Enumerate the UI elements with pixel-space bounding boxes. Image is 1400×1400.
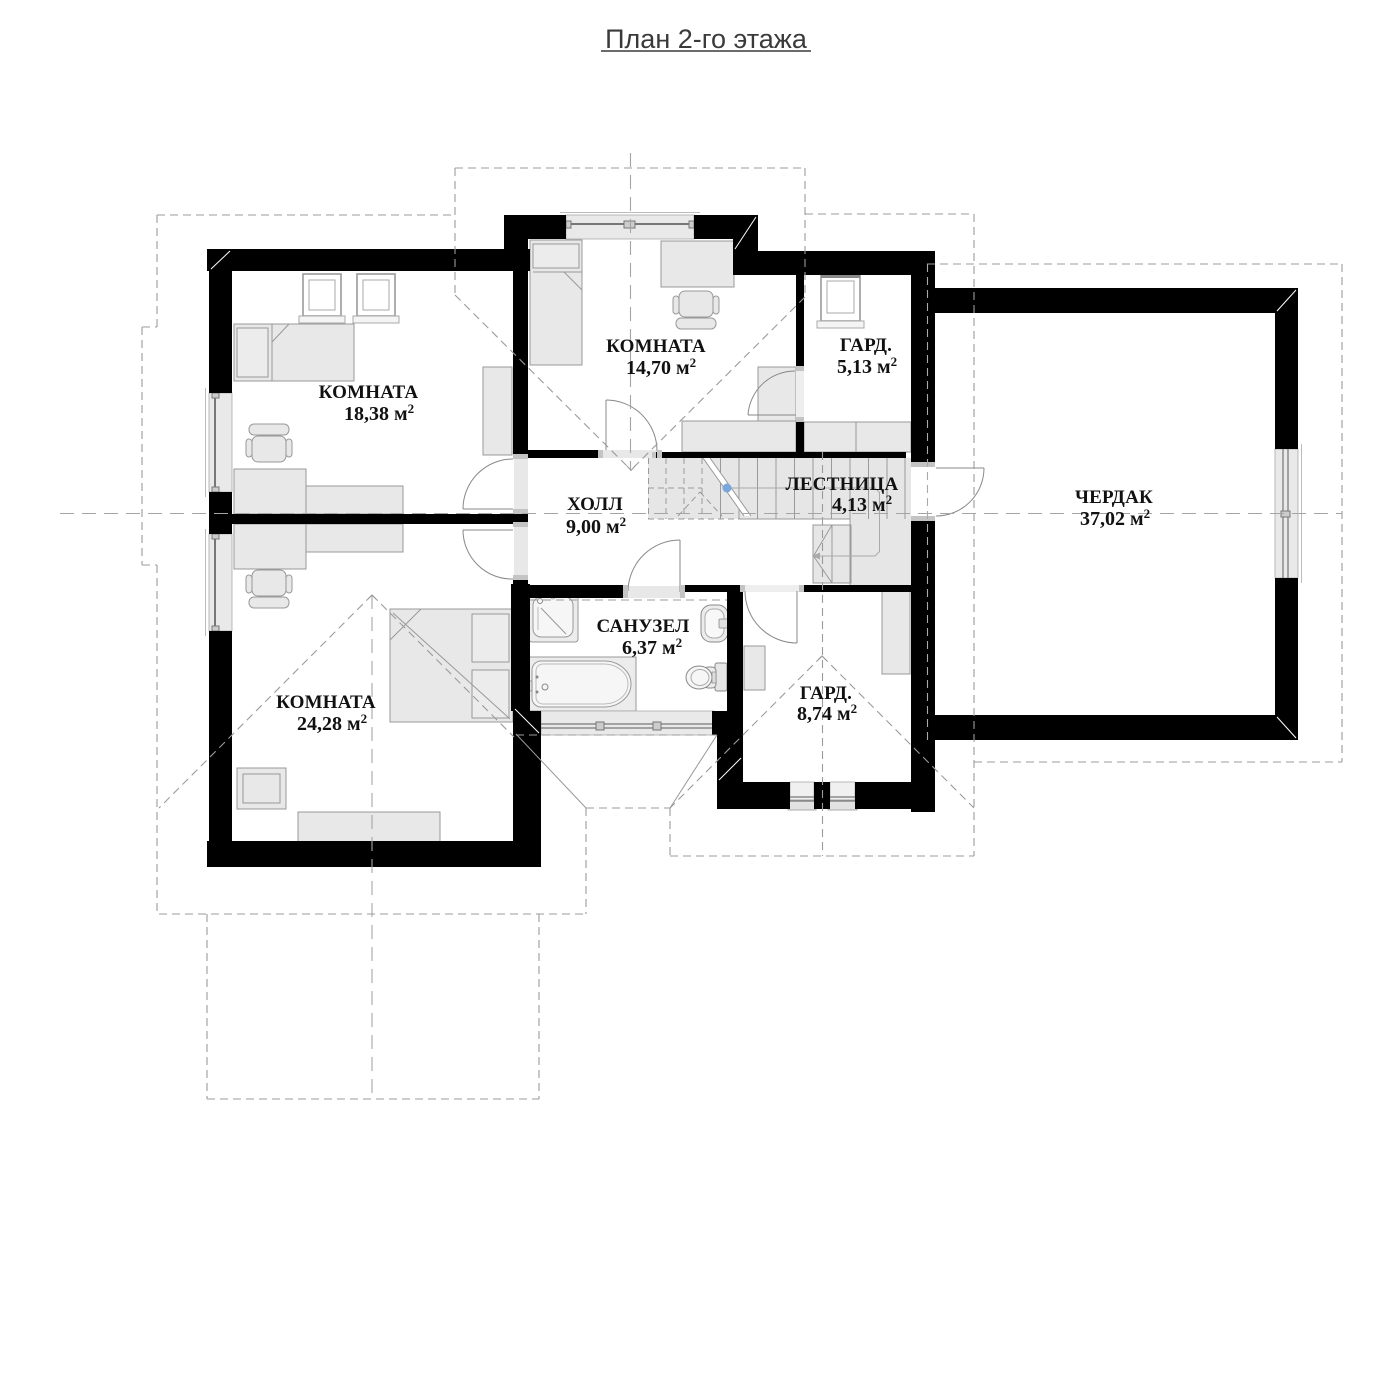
svg-text:ХОЛЛ: ХОЛЛ: [567, 494, 623, 515]
svg-text:5,13 м2: 5,13 м2: [837, 354, 897, 378]
svg-text:КОМНАТА: КОМНАТА: [276, 692, 376, 713]
svg-text:4,13 м2: 4,13 м2: [832, 492, 892, 516]
svg-text:ЛЕСТНИЦА: ЛЕСТНИЦА: [786, 474, 899, 495]
svg-text:8,74 м2: 8,74 м2: [797, 701, 857, 725]
svg-text:КОМНАТА: КОМНАТА: [606, 336, 706, 357]
svg-text:ГАРД.: ГАРД.: [800, 683, 852, 704]
svg-text:24,28 м2: 24,28 м2: [297, 711, 367, 735]
svg-text:18,38 м2: 18,38 м2: [344, 401, 414, 425]
svg-text:ГАРД.: ГАРД.: [840, 335, 892, 356]
svg-text:6,37 м2: 6,37 м2: [622, 635, 682, 659]
svg-text:37,02 м2: 37,02 м2: [1080, 506, 1150, 530]
svg-text:ЧЕРДАК: ЧЕРДАК: [1075, 487, 1153, 508]
svg-text:КОМНАТА: КОМНАТА: [319, 382, 419, 403]
svg-text:9,00 м2: 9,00 м2: [566, 514, 626, 538]
svg-text:14,70 м2: 14,70 м2: [626, 355, 696, 379]
svg-text:План 2-го этажа: План 2-го этажа: [605, 24, 808, 54]
svg-text:САНУЗЕЛ: САНУЗЕЛ: [597, 616, 690, 637]
